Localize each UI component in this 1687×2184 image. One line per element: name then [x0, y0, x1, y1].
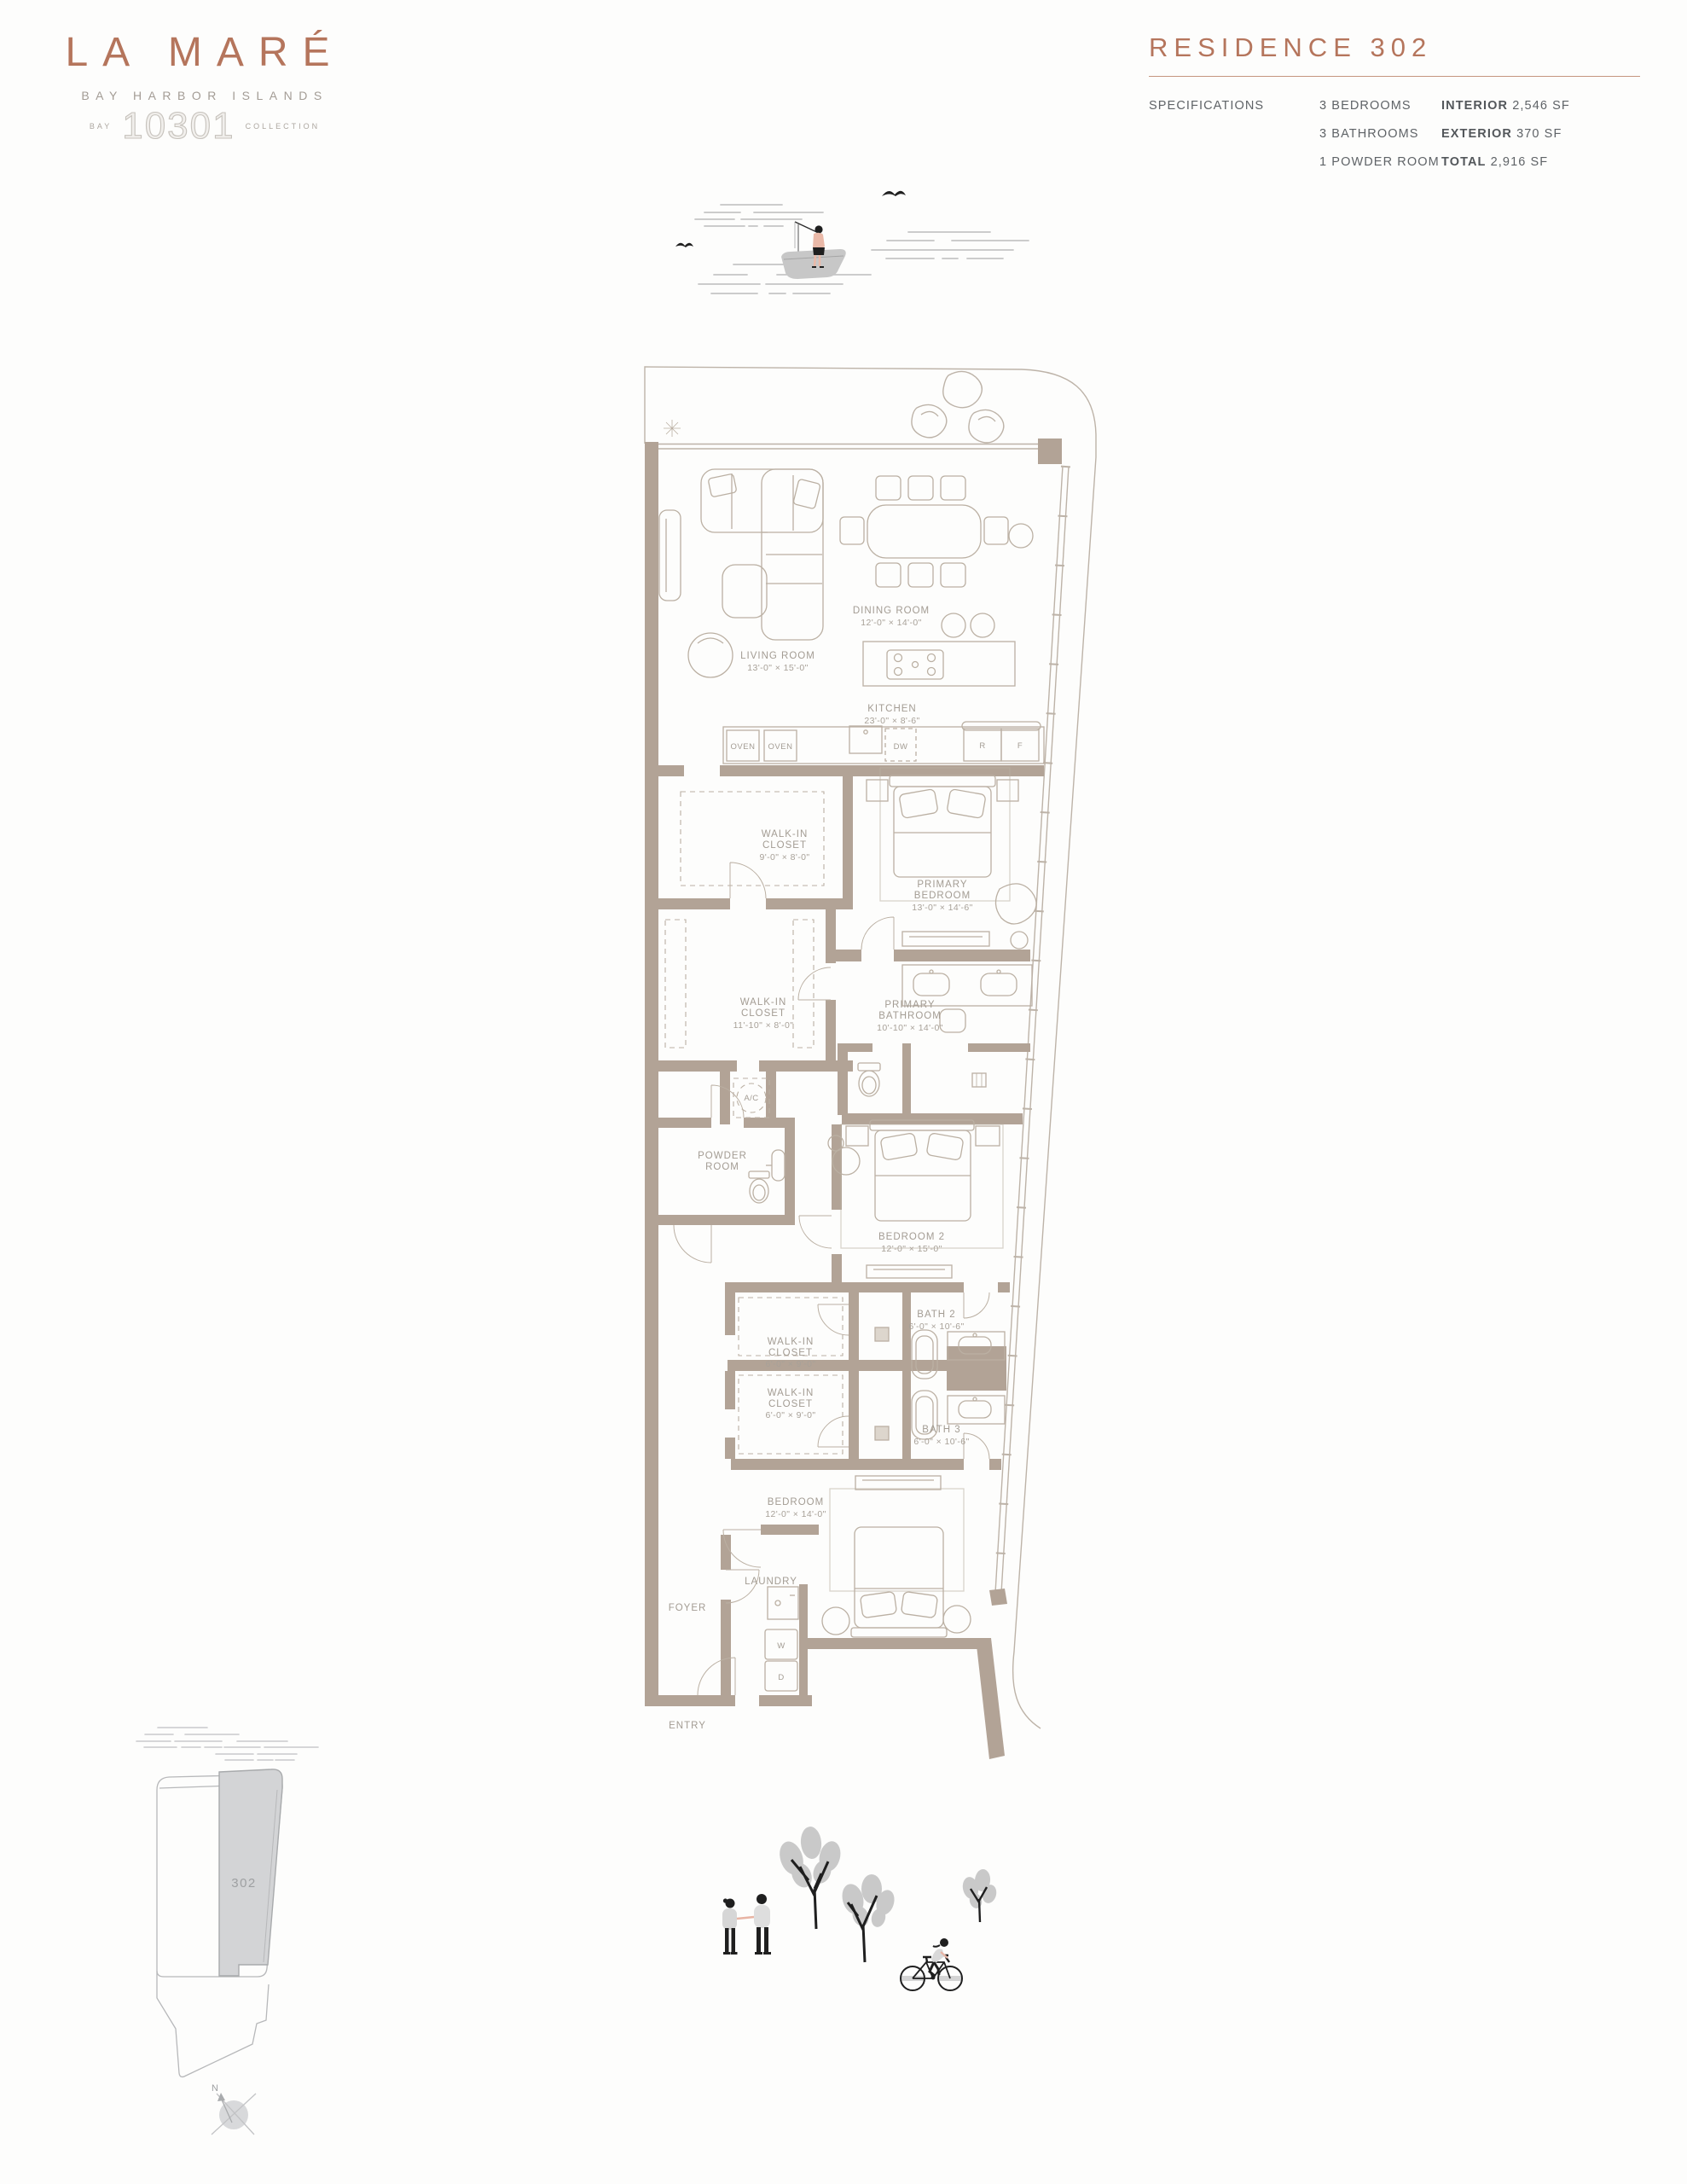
residence-title: RESIDENCE 302 [1149, 32, 1640, 63]
primary-bedroom-label: BEDROOM [914, 891, 971, 901]
spec-exterior-value: 370 SF [1516, 127, 1562, 141]
bedroom3-dims: 12'-0" × 14'-0" [765, 1509, 826, 1519]
north-compass-icon: N [212, 2083, 256, 2135]
dryer-label: D [778, 1673, 784, 1682]
powder-room-label: POWDER [698, 1151, 747, 1161]
spec-interior: INTERIOR 2,546 SF [1441, 92, 1640, 120]
tree-icon [775, 1826, 843, 1929]
wic1-dims: 9'-0" × 8'-0" [760, 852, 810, 863]
dining-room-dims: 12'-0" × 14'-0" [861, 618, 921, 628]
boat-illustration [672, 175, 1034, 316]
bird-icon [882, 191, 906, 196]
bath3-dims: 6'-0" × 10'-6" [913, 1437, 969, 1447]
keyplan: 302 N [102, 1715, 358, 2167]
wic3-label: WALK-IN [768, 1337, 815, 1347]
washer-label: W [777, 1641, 785, 1651]
floor-plan: LIVING ROOM 13'-0" × 15'-0" DINING ROOM … [631, 358, 1126, 1740]
spec-total-value: 2,916 SF [1491, 155, 1549, 169]
kitchen-label: KITCHEN [867, 704, 916, 714]
kitchen-dims: 23'-0" × 8'-6" [864, 716, 919, 726]
tree-icon [960, 1868, 998, 1922]
collection-number: 10301 [122, 107, 235, 145]
oven-label: OVEN [768, 742, 793, 752]
floorplan-brochure-page: LA MARÉ BAY HARBOR ISLANDS BAY 10301 COL… [0, 0, 1687, 2184]
primary-bathroom-dims: 10'-10" × 14'-0" [877, 1023, 943, 1033]
specs-table: SPECIFICATIONS 3 BEDROOMS 3 BATHROOMS 1 … [1149, 92, 1640, 177]
park-illustration [689, 1807, 1051, 2071]
wic3-dims: 6'-0" × 9'-0" [766, 1359, 816, 1369]
bedroom2-label: BEDROOM 2 [878, 1232, 945, 1242]
primary-bathroom-label: BATHROOM [878, 1011, 942, 1021]
dishwasher-label: DW [894, 742, 908, 752]
walls [645, 439, 1062, 1759]
primary-bedroom-dims: 13'-0" × 14'-6" [912, 903, 972, 913]
ac-label: A/C [744, 1094, 758, 1103]
brand-name: LA MARÉ [43, 29, 367, 76]
couple-figures [722, 1894, 771, 1955]
wic1-label: CLOSET [762, 840, 807, 851]
specs-areas: INTERIOR 2,546 SF EXTERIOR 370 SF TOTAL … [1441, 92, 1640, 177]
water-lines [695, 205, 1029, 293]
bedroom2-dims: 12'-0" × 15'-0" [881, 1244, 942, 1254]
keyplan-unit-number: 302 [231, 1876, 257, 1891]
cyclist-figure [901, 1938, 962, 1990]
collection-prefix: BAY [90, 122, 112, 131]
specs-label: SPECIFICATIONS [1149, 92, 1319, 177]
oven-label: OVEN [731, 742, 756, 752]
spec-powder: 1 POWDER ROOM [1319, 148, 1441, 177]
glass-wall [995, 466, 1069, 1594]
bath2-dims: 6'-0" × 10'-6" [908, 1321, 964, 1332]
spec-total-label: TOTAL [1441, 155, 1486, 169]
bath3-label: BATH 3 [922, 1425, 960, 1435]
spec-interior-value: 2,546 SF [1512, 99, 1570, 113]
bedroom3-label: BEDROOM [768, 1497, 824, 1507]
header-rule [1149, 76, 1640, 77]
wic2-label: WALK-IN [740, 997, 787, 1008]
north-label: N [212, 2083, 218, 2094]
specs-rooms: 3 BEDROOMS 3 BATHROOMS 1 POWDER ROOM [1319, 92, 1441, 177]
brand-location: BAY HARBOR ISLANDS [43, 89, 367, 102]
dining-room-label: DINING ROOM [853, 606, 930, 616]
tree-icon [839, 1874, 897, 1962]
primary-bathroom-label: PRIMARY [884, 1000, 935, 1010]
wic4-dims: 6'-0" × 9'-0" [766, 1410, 816, 1420]
spec-total: TOTAL 2,916 SF [1441, 148, 1640, 177]
wic2-dims: 11'-10" × 8'-0" [733, 1020, 794, 1031]
wic3-label: CLOSET [768, 1348, 813, 1358]
refrigerator-label: R [979, 741, 985, 751]
residence-header: RESIDENCE 302 SPECIFICATIONS 3 BEDROOMS … [1149, 32, 1640, 177]
wic1-label: WALK-IN [762, 829, 809, 839]
spec-bedrooms: 3 BEDROOMS [1319, 92, 1441, 120]
primary-bedroom-label: PRIMARY [917, 880, 967, 890]
foyer-label: FOYER [669, 1603, 707, 1613]
furniture [659, 420, 1044, 1691]
spec-exterior-label: EXTERIOR [1441, 127, 1512, 141]
spec-interior-label: INTERIOR [1441, 99, 1508, 113]
spec-exterior: EXTERIOR 370 SF [1441, 120, 1640, 148]
living-room-label: LIVING ROOM [740, 651, 815, 661]
living-room-dims: 13'-0" × 15'-0" [747, 663, 808, 673]
brand-logo: LA MARÉ BAY HARBOR ISLANDS BAY 10301 COL… [43, 29, 367, 145]
wic4-label: WALK-IN [768, 1388, 815, 1398]
spec-bathrooms: 3 BATHROOMS [1319, 120, 1441, 148]
wic4-label: CLOSET [768, 1399, 813, 1409]
entry-label: ENTRY [669, 1721, 706, 1731]
powder-room-label: ROOM [705, 1162, 739, 1172]
laundry-label: LAUNDRY [745, 1577, 797, 1587]
wic2-label: CLOSET [741, 1008, 786, 1019]
keyplan-water-lines [136, 1728, 318, 1760]
unit-302-highlight [219, 1769, 282, 1976]
collection-lockup: BAY 10301 COLLECTION [43, 107, 367, 145]
freezer-label: F [1017, 741, 1023, 751]
bird-icon [675, 243, 693, 247]
collection-suffix: COLLECTION [246, 122, 321, 131]
bath2-label: BATH 2 [917, 1310, 955, 1320]
